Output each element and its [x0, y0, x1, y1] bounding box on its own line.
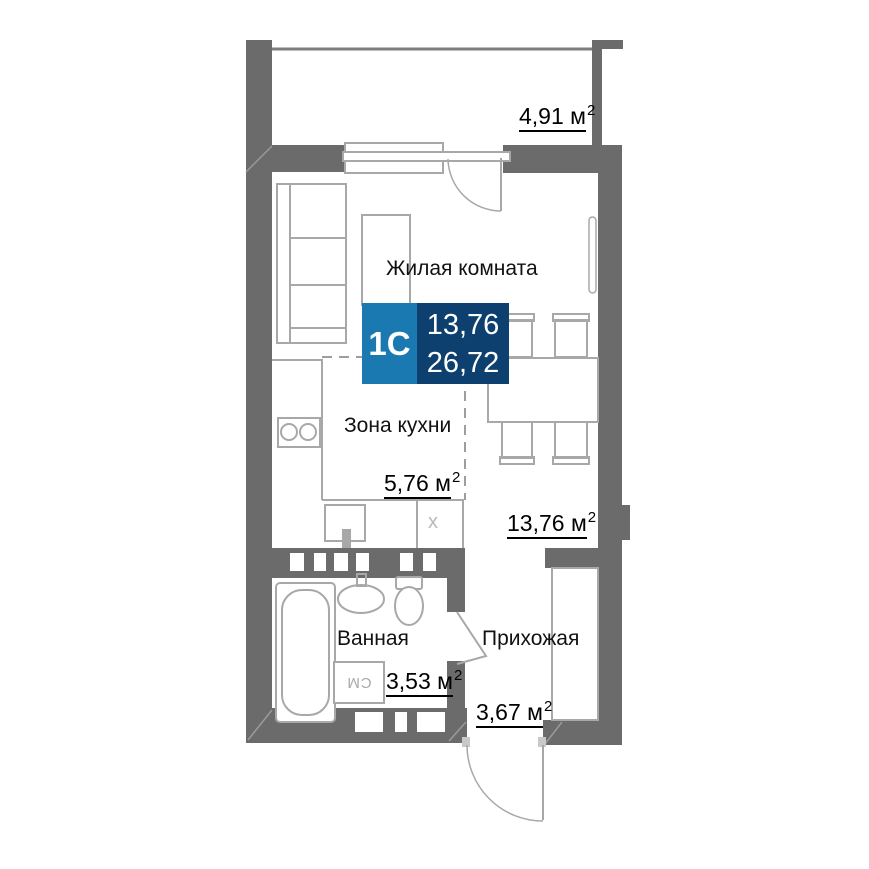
washing-machine-label: СМ — [334, 674, 384, 691]
balcony-right-wall — [592, 40, 602, 147]
apartment-areas: 13,76 26,72 — [417, 303, 509, 384]
bathroom-sink — [338, 585, 384, 613]
floor-plan: Жилая комната Зона кухни Ванная Прихожая… — [0, 0, 869, 869]
cooktop — [278, 418, 320, 447]
hallway-area-label: 3,67 м2 — [476, 698, 552, 726]
kitchen-faucet — [343, 530, 350, 547]
apartment-type-badge: 1С 13,76 26,72 — [362, 303, 509, 384]
entry-door-jamb-mark — [462, 737, 470, 747]
kitchen-zone-name: Зона кухни — [344, 414, 451, 438]
bottom-wall-right — [543, 720, 622, 745]
balcony-bottom-wall-right — [503, 145, 622, 173]
hallway-name: Прихожая — [482, 627, 579, 651]
hallway-top-wall-stub — [545, 548, 598, 568]
bathtub — [276, 583, 335, 722]
bathroom-area-label: 3,53 м2 — [386, 667, 462, 695]
bathroom-name: Ванная — [337, 627, 409, 651]
right-wall-pilaster — [622, 505, 630, 540]
cooktop-burner — [300, 424, 316, 440]
badge-living-area: 13,76 — [427, 306, 500, 344]
chair — [553, 422, 589, 464]
hallway-elements — [462, 568, 598, 821]
wardrobe — [277, 184, 346, 343]
balcony-area-label: 4,91 м2 — [519, 102, 595, 130]
entry-door-swing-arc — [467, 745, 543, 821]
chair — [500, 422, 534, 464]
toilet-bowl — [395, 587, 423, 625]
cooktop-burner — [281, 424, 297, 440]
right-wall — [598, 173, 622, 722]
badge-total-area: 26,72 — [427, 344, 500, 382]
bathroom-right-wall-upper — [447, 578, 465, 612]
top-right-wall-stub — [592, 40, 623, 49]
living-area-label: 13,76 м2 — [507, 509, 596, 537]
balcony-bottom-wall-left — [246, 145, 345, 172]
appliance-x-mark: х — [428, 511, 438, 534]
radiator — [589, 217, 596, 293]
living-room-name: Жилая комната — [386, 257, 538, 281]
kitchen-area-label: 5,76 м2 — [384, 469, 460, 497]
balcony-door-swing-arc — [448, 159, 501, 211]
window-sill — [343, 152, 510, 161]
chair — [553, 314, 589, 357]
apartment-type-code: 1С — [362, 303, 417, 384]
